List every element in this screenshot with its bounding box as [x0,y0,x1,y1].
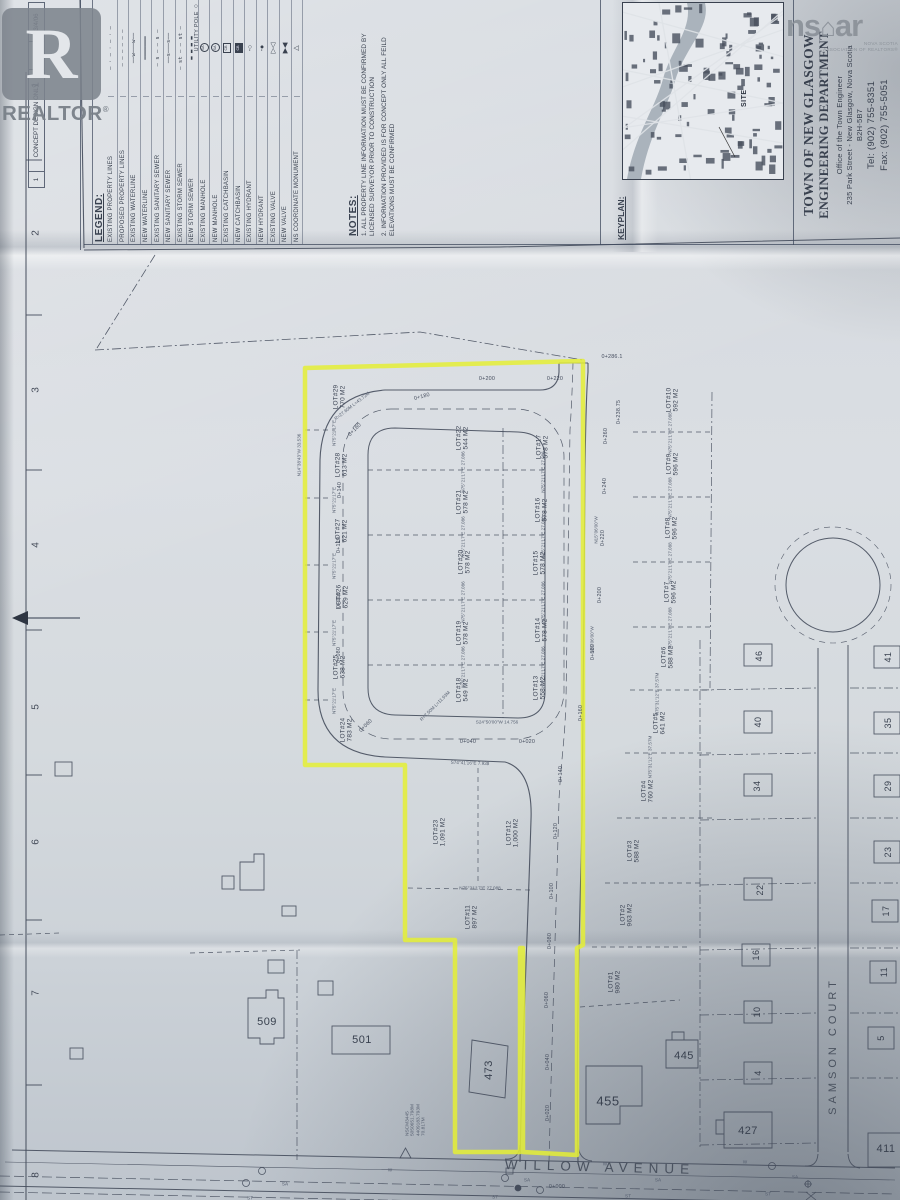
lot-label: LOT#10 592 M2 [666,388,681,413]
street-name-willow: WILLOW AVENUE [505,1157,696,1177]
station-label: 0+020 [545,1105,551,1121]
lot-label: LOT#22 544 M2 [456,426,471,451]
bearing-label: SA [792,1174,798,1179]
station-label: 0+286.1 [601,354,622,360]
grid-number: 3 [30,387,41,393]
bearing-label: ST [492,1194,498,1199]
realtor-logo-icon: R [2,8,101,100]
lot-label: LOT#28 613 M2 [335,453,350,478]
realtor-watermark: R REALTOR® [2,8,109,126]
lot-label: LOT#11 897 M2 [465,905,480,929]
bearing-label: N75°21'17"E 27.086 [540,516,545,557]
house-number: 41 [883,651,893,662]
bearing-label: ST [247,1195,253,1200]
station-label: 0+160 [347,422,363,438]
bearing-label: N75°21'17"E 27.086 [460,646,465,687]
station-label: 0+240 [602,478,608,494]
station-label: 0+200 [597,587,603,603]
grid-number: 8 [30,1172,41,1178]
grid-number: 2 [30,230,41,236]
bearing-label: N75°21'17"E 27.088 [459,885,500,890]
house-icon: ⌂ [820,12,835,42]
lot-label: LOT#7 596 M2 [664,581,679,604]
lot-label: LOT#2 963 M2 [620,904,635,927]
bearing-label: N75°31'12"E 37.57M [647,736,652,779]
station-label: 0+040 [545,1054,551,1070]
lot-label: LOT#12 1,000 M2 [506,819,521,848]
plan-labels: LOT#1 980 M2LOT#2 963 M2LOT#3 588 M2LOT#… [0,0,900,1200]
lot-label: LOT#4 760 M2 [641,780,656,803]
bearing-label: N75°21'17"E 27.088 [667,477,672,518]
bearing-label: N75°21'17"E 27.088 [667,607,672,648]
grid-number: 5 [30,704,41,710]
grid-number: 6 [30,839,41,845]
bearing-label: W [743,1159,748,1164]
bearing-label: N15°06'00"W [593,516,598,543]
station-label: 0+180 [413,392,430,402]
bearing-label: N75°21'17"E 27.086 [460,516,465,557]
station-label: 0+220 [600,530,606,546]
house-number: 411 [876,1143,895,1155]
bearing-label: N75°31'12"E 37.57M [654,673,659,716]
station-label: 0+080 [547,933,553,949]
bearing-label: N14°38'43"W 33.536 [296,434,301,477]
grid-number: 7 [30,990,41,996]
house-number: 29 [883,780,893,791]
bearing-label: SA [655,1177,661,1182]
lot-label: LOT#24 783 M2 [340,718,355,743]
house-number: 17 [881,905,891,916]
house-number: 509 [257,1016,277,1028]
bearing-label: N75°21'17"E 27.086 [540,581,545,622]
house-number: 46 [754,650,764,661]
bearing-label: N75°21'17"E [331,420,336,446]
house-number: 4 [753,1070,763,1076]
bearing-label: N75°21'17"E [331,688,336,714]
lot-label: LOT#8 596 M2 [665,517,680,540]
bearing-label: N75°21'17"E 27.086 [460,581,465,622]
station-label: 0+260 [603,428,609,444]
station-label: 0+200 [479,376,495,382]
bearing-label: N75°21'17"E 27.086 [540,646,545,687]
house-number: 40 [753,716,763,727]
lot-label: LOT#21 578 M2 [456,490,471,515]
bearing-label: N75°21'17"E 27.086 [540,451,545,492]
station-label: 0+060 [358,718,374,734]
house-number: 5 [876,1035,886,1041]
station-label: 0+160 [578,705,584,721]
lot-label: LOT#29 770 M2 [333,385,348,410]
bearing-label: N75°21'17"E 27.086 [460,451,465,492]
bearing-label: ST [625,1193,631,1198]
station-label: 0+220 [547,376,563,382]
station-label: 0+120 [553,823,559,839]
station-label: 0+080 [336,647,342,663]
lot-label: LOT#1 980 M2 [608,971,623,994]
bearing-label: SA [524,1177,530,1182]
bearing-label: N75°21'17"E 27.088 [667,412,672,453]
house-number: 455 [596,1095,619,1110]
bearing-label: W [388,1167,393,1172]
bearing-label: S24°50'00"W 14.756 [476,719,518,724]
lot-label: LOT#9 596 M2 [666,453,681,476]
grid-number: 4 [30,542,41,548]
station-label: 0+100 [336,592,342,608]
realtor-wordmark: REALTOR® [2,102,109,126]
station-label: 0+100 [549,883,555,899]
house-number: 23 [883,846,893,857]
house-number: 11 [879,967,889,977]
nsar-watermark: ns⌂ar NOVA SCOTIAASSOCIATION OF REALTORS… [786,12,898,52]
bearing-label: R=7.50M L=11.93M [419,690,451,722]
station-label: 0+060 [544,992,550,1008]
station-label: 0+238.75 [616,400,622,424]
station-label: 0+140 [558,766,564,782]
bearing-label: N75°21'17"E [331,620,336,646]
bearing-label: SA [282,1181,288,1186]
station-label: 0+140 [337,482,343,498]
station-label: 0+040 [460,739,476,745]
station-label: 0+000 [549,1184,565,1190]
lot-label: LOT#19 578 M2 [456,621,471,646]
lot-label: LOT#3 588 M2 [627,840,642,863]
house-number: 445 [674,1050,694,1062]
bearing-label: N75°21'17"E [331,553,336,579]
nsar-logo-icon: ns⌂ar [786,12,898,40]
house-number: 22 [755,884,765,895]
house-number: 473 [483,1060,495,1080]
house-number: 34 [752,780,762,791]
lot-label: LOT#23 1,091 M2 [433,818,448,847]
street-name-samson: SAMSON COURT [827,977,839,1115]
station-label: 0+120 [336,537,342,553]
house-number: 427 [738,1125,758,1137]
monument-note: NSCM3445 5050651.798M 4409183.793M 70.81… [405,1104,426,1136]
house-number: 501 [352,1034,372,1046]
station-label: 0+020 [519,739,535,745]
bearing-label: N15°06'00"W [589,626,594,653]
house-number: 10 [752,1006,762,1017]
bearing-label: N75°21'17"E [331,487,336,513]
bearing-label: ST [765,1191,771,1196]
house-number: 35 [883,717,893,728]
bearing-label: N75°21'17"E 27.088 [667,542,672,583]
lot-label: LOT#6 588 M2 [661,646,676,669]
bearing-label: S74°41'16"E 7.938 [451,760,490,766]
house-number: 16 [751,949,761,960]
site-plan-photo: 1 CONCEPT DESIGN ONLY RPS 3/4/06 LEGEND:… [0,0,900,1200]
